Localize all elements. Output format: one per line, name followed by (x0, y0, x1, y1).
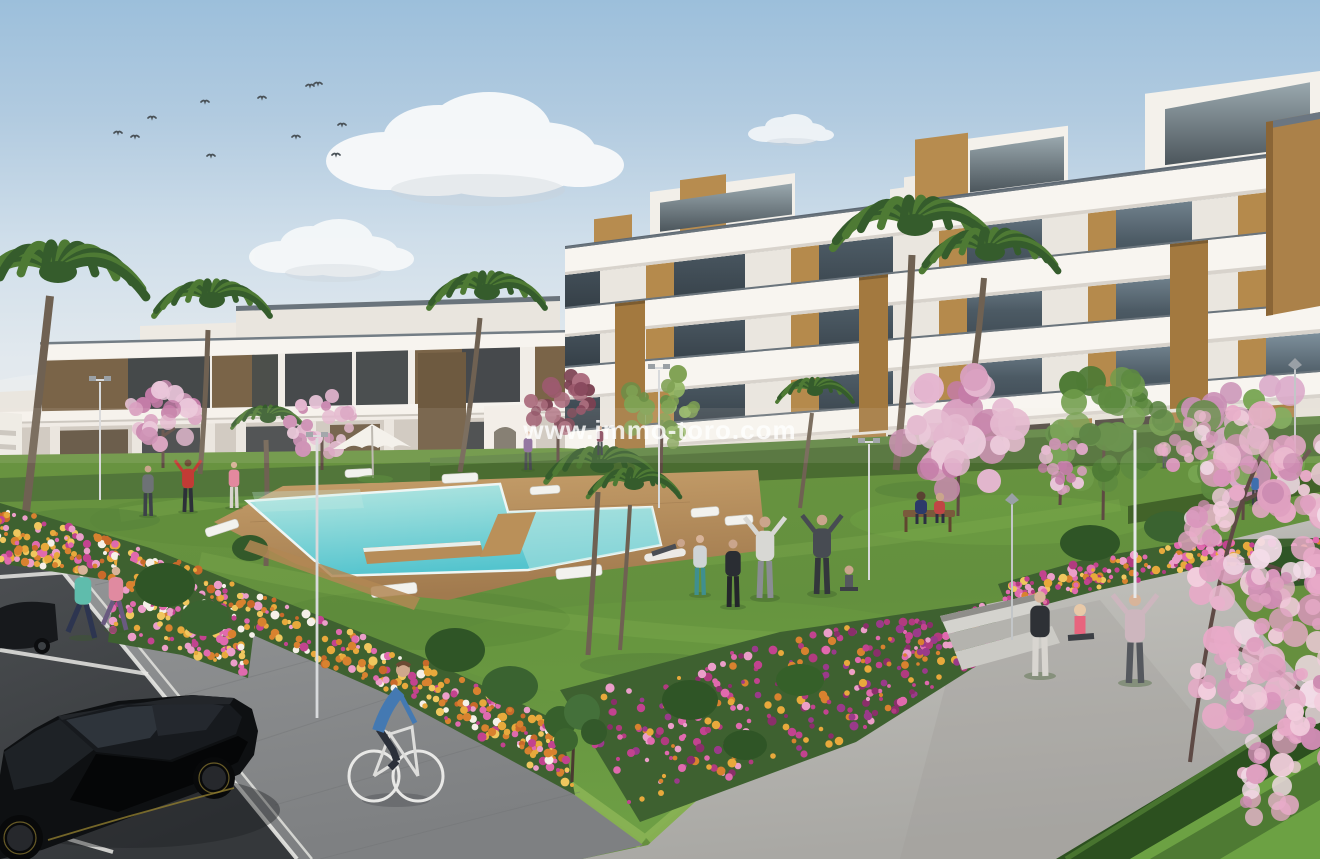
svg-text:www.immo-toro.com: www.immo-toro.com (522, 415, 796, 445)
